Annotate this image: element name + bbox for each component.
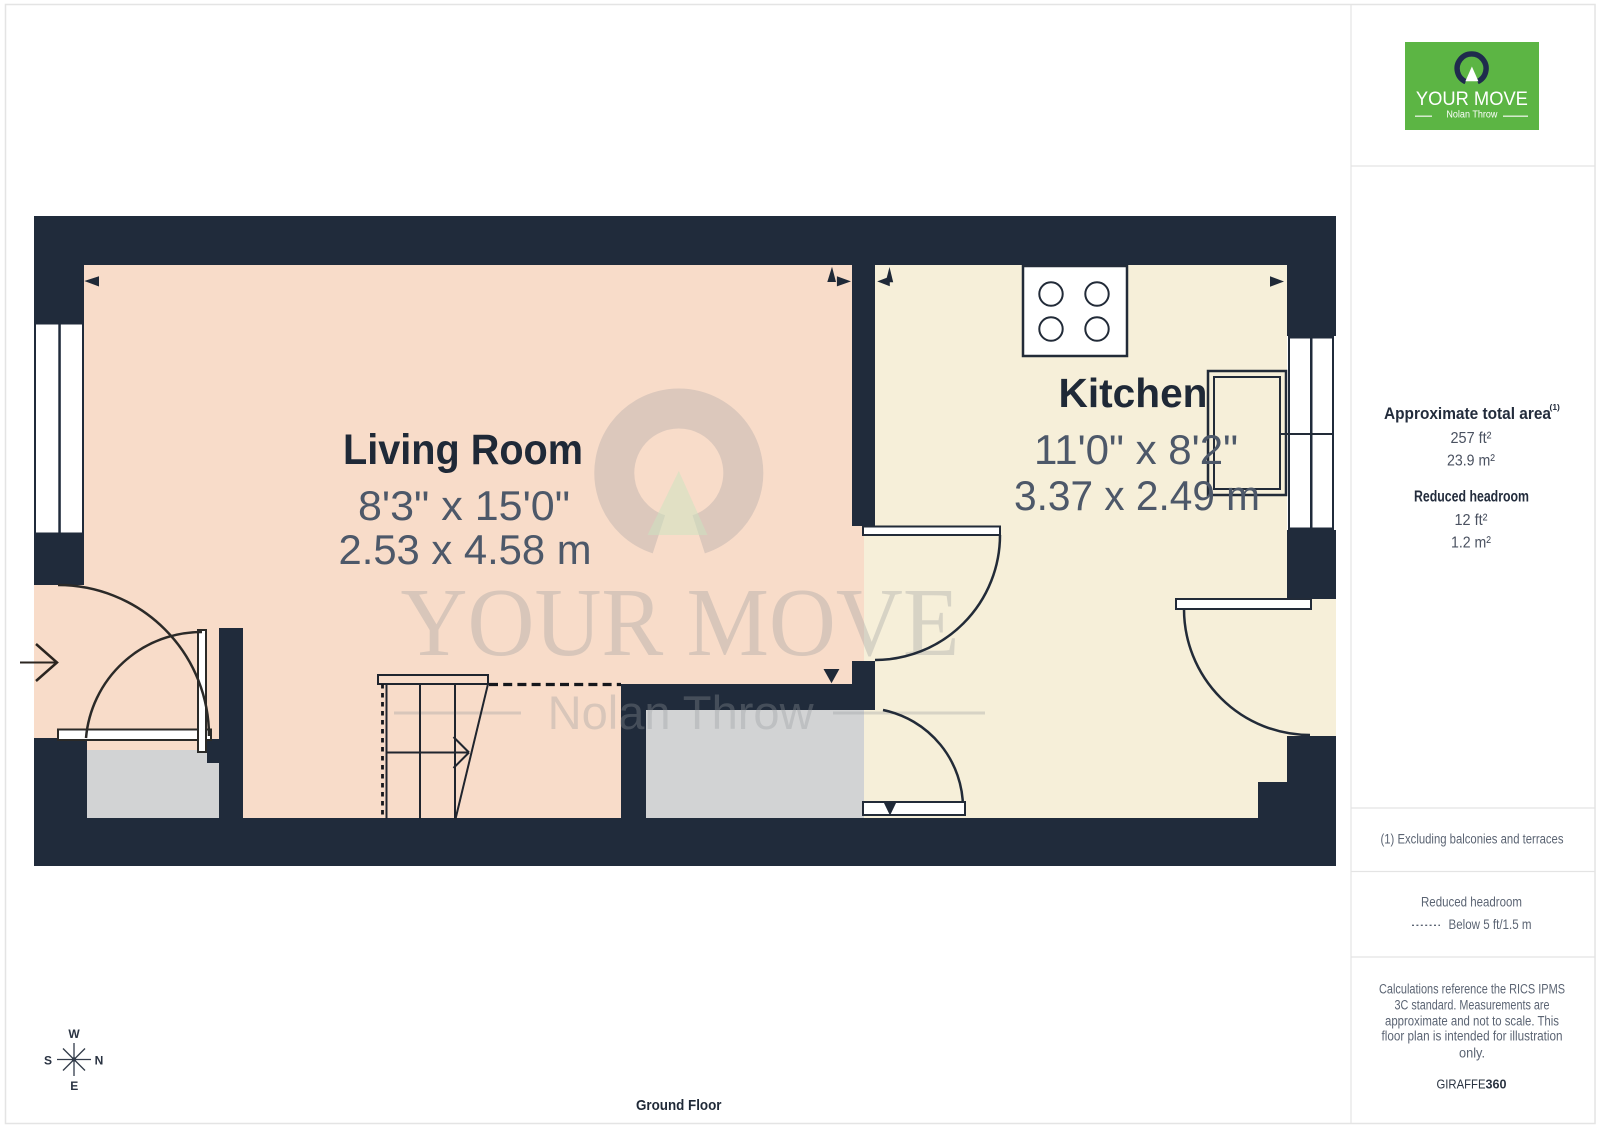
svg-text:N: N xyxy=(95,1054,104,1068)
svg-text:360: 360 xyxy=(1486,1077,1507,1092)
svg-text:Living Room: Living Room xyxy=(343,426,583,474)
svg-text:Nolan Throw: Nolan Throw xyxy=(1446,109,1497,121)
svg-text:8'3" x 15'0": 8'3" x 15'0" xyxy=(358,482,570,529)
svg-text:GIRAFFE: GIRAFFE xyxy=(1437,1077,1486,1092)
svg-text:only.: only. xyxy=(1459,1046,1485,1061)
svg-text:Reduced headroom: Reduced headroom xyxy=(1414,489,1529,506)
svg-text:approximate and not to scale.: approximate and not to scale. This xyxy=(1385,1014,1559,1029)
svg-text:2.53 x 4.58 m: 2.53 x 4.58 m xyxy=(339,526,592,573)
svg-text:Approximate total area: Approximate total area xyxy=(1384,405,1552,423)
svg-text:W: W xyxy=(68,1027,80,1041)
svg-text:(1): (1) xyxy=(1550,402,1561,412)
svg-text:(1) Excluding balconies and te: (1) Excluding balconies and terraces xyxy=(1381,832,1564,847)
svg-text:Nolan Throw: Nolan Throw xyxy=(548,686,815,739)
svg-text:E: E xyxy=(70,1079,78,1093)
svg-text:Calculations reference the RIC: Calculations reference the RICS IPMS xyxy=(1379,981,1565,996)
svg-text:Kitchen: Kitchen xyxy=(1059,370,1208,416)
svg-text:floor plan is intended for ill: floor plan is intended for illustration xyxy=(1382,1029,1563,1044)
svg-text:1.2 m²: 1.2 m² xyxy=(1451,534,1492,551)
svg-text:12 ft²: 12 ft² xyxy=(1455,512,1489,529)
svg-text:23.9 m²: 23.9 m² xyxy=(1447,453,1496,470)
svg-text:3C standard. Measurements are: 3C standard. Measurements are xyxy=(1395,998,1550,1013)
svg-text:S: S xyxy=(44,1054,52,1068)
svg-text:Reduced headroom: Reduced headroom xyxy=(1421,894,1522,910)
svg-text:3.37 x 2.49 m: 3.37 x 2.49 m xyxy=(1014,472,1260,519)
svg-text:Ground Floor: Ground Floor xyxy=(636,1098,722,1114)
svg-text:YOUR MOVE: YOUR MOVE xyxy=(1416,89,1528,110)
svg-text:11'0" x 8'2": 11'0" x 8'2" xyxy=(1034,426,1238,473)
svg-text:Below 5 ft/1.5 m: Below 5 ft/1.5 m xyxy=(1449,916,1532,932)
svg-text:257 ft²: 257 ft² xyxy=(1451,430,1493,447)
